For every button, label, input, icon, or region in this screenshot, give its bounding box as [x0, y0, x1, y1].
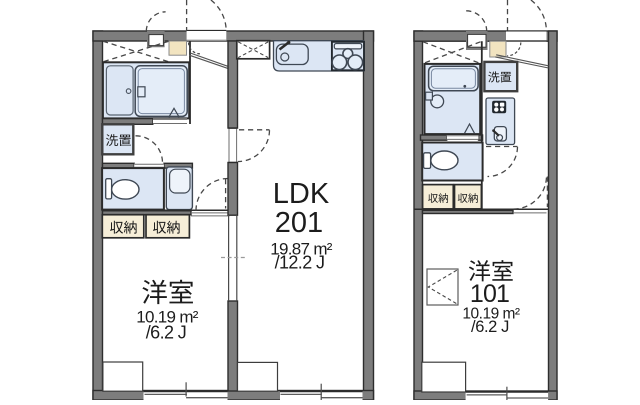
svg-text:/12.2 J: /12.2 J — [275, 253, 325, 273]
svg-text:/6.2 J: /6.2 J — [471, 318, 509, 336]
svg-text:/6.2 J: /6.2 J — [146, 323, 186, 343]
svg-text:LDK: LDK — [273, 178, 330, 210]
svg-text:201: 201 — [275, 207, 323, 239]
svg-text:101: 101 — [470, 280, 509, 308]
